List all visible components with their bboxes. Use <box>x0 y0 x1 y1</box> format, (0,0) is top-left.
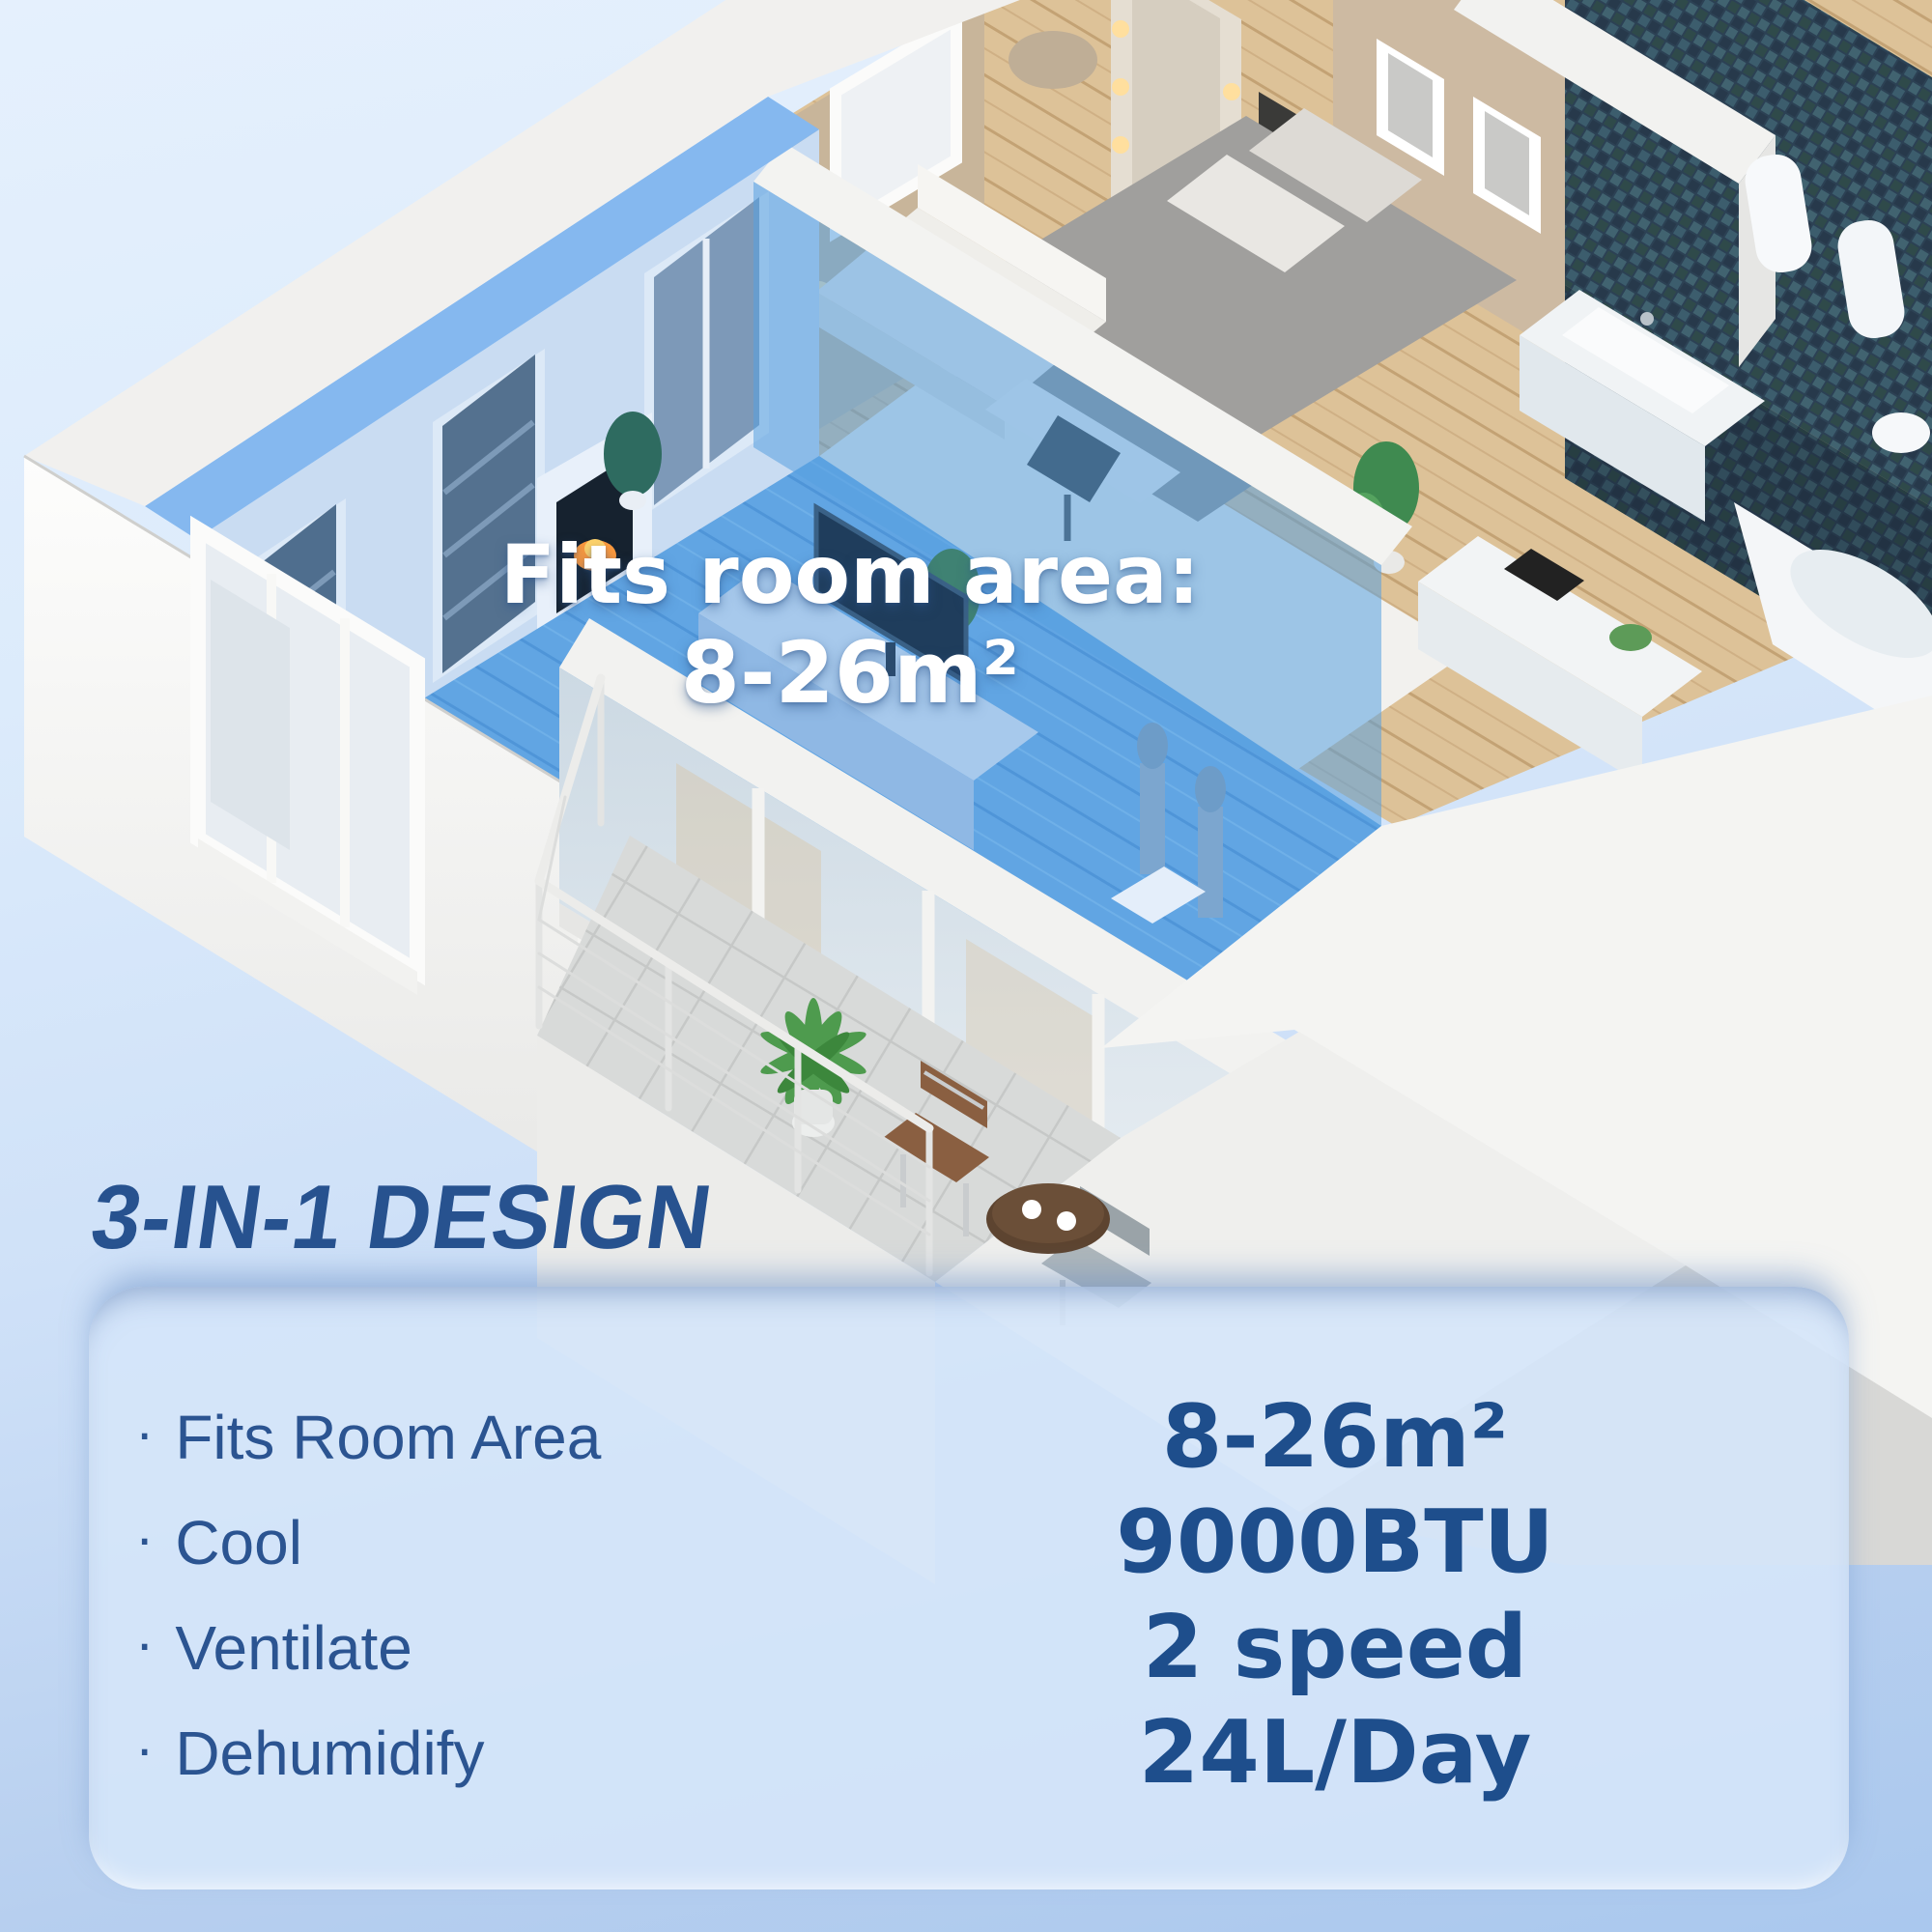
spec-value-room-area: 8-26m² <box>939 1384 1731 1490</box>
feature-label: Dehumidify <box>175 1718 484 1789</box>
spec-value-btu: 9000BTU <box>939 1490 1731 1595</box>
product-infographic: Fits room area: 8-26m² 3-IN-1 DESIGN · F… <box>0 0 1932 1932</box>
bedside-table <box>1009 31 1097 89</box>
coverage-overlay-area: 8-26m² <box>464 623 1236 724</box>
feature-row-cool: · Cool <box>135 1490 601 1595</box>
feature-label: Fits Room Area <box>175 1402 601 1473</box>
toilet <box>1872 412 1930 453</box>
spec-values: 8-26m² 9000BTU 2 speed 24L/Day <box>939 1384 1731 1805</box>
coverage-overlay-title: Fits room area: <box>464 526 1236 623</box>
feature-row-fits-room-area: · Fits Room Area <box>135 1384 601 1490</box>
feature-label: Cool <box>175 1507 302 1578</box>
feature-row-ventilate: · Ventilate <box>135 1595 601 1700</box>
spec-value-speed: 2 speed <box>939 1595 1731 1700</box>
bullet-icon: · <box>135 1401 154 1465</box>
bullet-icon: · <box>135 1506 154 1571</box>
feature-row-dehumidify: · Dehumidify <box>135 1700 601 1805</box>
coverage-overlay: Fits room area: 8-26m² <box>464 526 1236 724</box>
bullet-icon: · <box>135 1611 154 1676</box>
feature-label: Ventilate <box>175 1612 412 1684</box>
spec-value-dehumidify-rate: 24L/Day <box>939 1700 1731 1805</box>
section-heading: 3-IN-1 DESIGN <box>85 1165 719 1269</box>
bullet-icon: · <box>135 1717 154 1781</box>
feature-list: · Fits Room Area · Cool · Ventilate · De… <box>135 1384 601 1805</box>
spec-panel: · Fits Room Area · Cool · Ventilate · De… <box>89 1287 1849 1889</box>
